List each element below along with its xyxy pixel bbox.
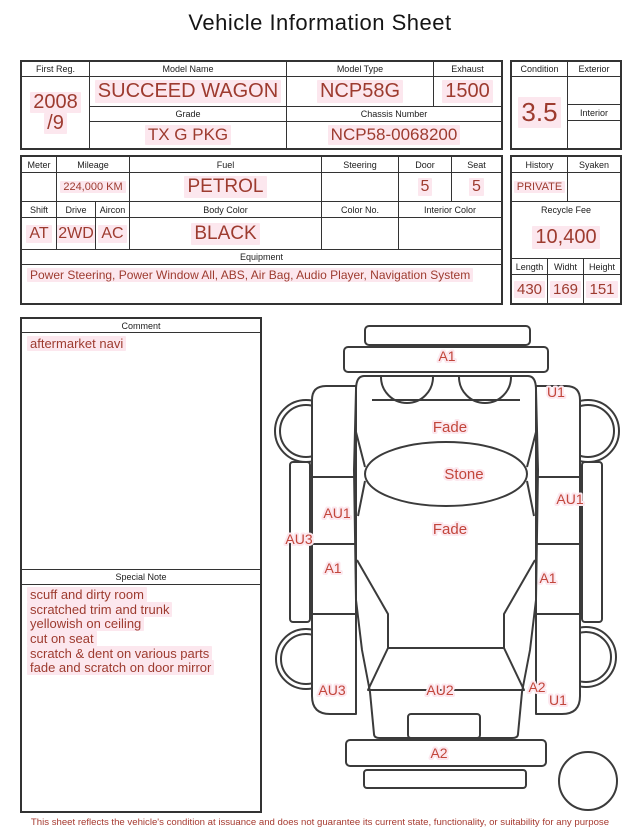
body-color-value: BLACK xyxy=(130,218,322,250)
damage-label: U1 xyxy=(547,384,565,400)
equipment-value: Power Steering, Power Window All, ABS, A… xyxy=(22,265,501,303)
color-no-value xyxy=(322,218,399,250)
mileage-value: 224,000 KM xyxy=(57,173,130,202)
special-note-label: Special Note xyxy=(22,569,260,585)
aircon-value: AC xyxy=(96,218,130,250)
damage-label: A1 xyxy=(438,348,455,364)
special-note-line: yellowish on ceiling xyxy=(27,617,144,631)
steering-label: Steering xyxy=(322,157,399,173)
seat-value: 5 xyxy=(452,173,501,202)
right-sill-panel xyxy=(582,462,602,622)
exterior-value xyxy=(568,77,620,105)
damage-label: AU3 xyxy=(318,682,345,698)
comment-special-note-box: Comment aftermarket navi Special Note sc… xyxy=(20,317,262,813)
comment-label: Comment xyxy=(22,319,260,333)
left-rear-fender-panel xyxy=(312,614,356,714)
syaken-value xyxy=(568,173,620,202)
license-plate-recess xyxy=(408,714,480,738)
recycle-fee-value: 10,400 xyxy=(512,217,620,259)
mileage-label: Mileage xyxy=(57,157,130,173)
history-label: History xyxy=(512,157,568,173)
damage-label: A2 xyxy=(430,745,447,761)
width-label: Widht xyxy=(548,259,584,275)
special-note-line: cut on seat xyxy=(27,632,97,646)
door-value: 5 xyxy=(399,173,452,202)
condition-value: 3.5 xyxy=(512,77,568,148)
meter-value xyxy=(22,173,57,202)
body-color-label: Body Color xyxy=(130,202,322,218)
height-value: 151 xyxy=(584,275,620,303)
chassis-number-label: Chassis Number xyxy=(287,107,501,122)
condition-label: Condition xyxy=(512,62,568,77)
damage-label: A2 xyxy=(528,679,545,695)
interior-label: Interior xyxy=(568,105,620,121)
interior-value xyxy=(568,121,620,148)
right-front-door-panel xyxy=(536,477,580,544)
history-value: PRIVATE xyxy=(512,173,568,202)
damage-label: AU1 xyxy=(556,491,583,507)
damage-label: AU1 xyxy=(323,505,350,521)
first-reg-label: First Reg. xyxy=(22,62,90,77)
damage-label: Fade xyxy=(433,521,467,538)
steering-value xyxy=(322,173,399,202)
comment-text: aftermarket navi xyxy=(22,333,260,569)
shift-label: Shift xyxy=(22,202,57,218)
cargo-side-lines xyxy=(357,560,535,648)
fuel-value: PETROL xyxy=(130,173,322,202)
left-front-fender-panel xyxy=(312,386,356,477)
damage-label: A1 xyxy=(539,570,556,586)
front-bumper-upper-bar xyxy=(365,326,530,345)
special-note-list: scuff and dirty room scratched trim and … xyxy=(22,585,260,811)
car-damage-diagram: A1 U1 Fade Stone AU1 AU1 AU3 Fade A1 A1 … xyxy=(268,318,632,812)
model-name-value: SUCCEED WAGON xyxy=(90,77,287,107)
page-title: Vehicle Information Sheet xyxy=(0,10,640,36)
seat-label: Seat xyxy=(452,157,501,173)
length-label: Length xyxy=(512,259,548,275)
width-value: 169 xyxy=(548,275,584,303)
fuel-label: Fuel xyxy=(130,157,322,173)
first-reg-year: 2008 xyxy=(30,92,81,113)
damage-label: AU2 xyxy=(426,682,453,698)
grade-value: TX G PKG xyxy=(90,122,287,148)
left-rear-door-panel xyxy=(312,544,356,614)
special-note-line: scratched trim and trunk xyxy=(27,603,172,617)
recycle-fee-label: Recycle Fee xyxy=(512,202,620,217)
exhaust-value: 1500 xyxy=(434,77,501,107)
spare-wheel xyxy=(559,752,617,810)
rear-bumper-lower-bar xyxy=(364,770,526,788)
special-note-line: fade and scratch on door mirror xyxy=(27,661,214,675)
interior-color-value xyxy=(399,218,501,250)
height-label: Height xyxy=(584,259,620,275)
meter-label: Meter xyxy=(22,157,57,173)
special-note-line: scratch & dent on various parts xyxy=(27,647,212,661)
drive-label: Drive xyxy=(57,202,96,218)
model-type-value: NCP58G xyxy=(287,77,434,107)
first-reg-value: 2008 /9 xyxy=(22,77,90,148)
damage-label: U1 xyxy=(549,692,567,708)
exhaust-label: Exhaust xyxy=(434,62,501,77)
color-no-label: Color No. xyxy=(322,202,399,218)
damage-label: Stone xyxy=(444,466,483,483)
condition-panel: Condition 3.5 Exterior Interior xyxy=(510,60,622,150)
exterior-label: Exterior xyxy=(568,62,620,77)
interior-color-label: Interior Color xyxy=(399,202,501,218)
equipment-label: Equipment xyxy=(22,250,501,265)
first-reg-month: /9 xyxy=(44,113,67,134)
syaken-label: Syaken xyxy=(568,157,620,173)
damage-label: AU3 xyxy=(285,531,312,547)
history-panel: History Syaken PRIVATE Recycle Fee 10,40… xyxy=(510,155,622,305)
damage-label: A1 xyxy=(324,560,341,576)
model-name-label: Model Name xyxy=(90,62,287,77)
vehicle-information-sheet: Vehicle Information Sheet First Reg. 200… xyxy=(0,0,640,835)
chassis-number-value: NCP58-0068200 xyxy=(287,122,501,148)
disclaimer-text: This sheet reflects the vehicle's condit… xyxy=(0,817,640,828)
model-type-label: Model Type xyxy=(287,62,434,77)
grade-label: Grade xyxy=(90,107,287,122)
door-label: Door xyxy=(399,157,452,173)
shift-value: AT xyxy=(22,218,57,250)
aircon-label: Aircon xyxy=(96,202,130,218)
drive-value: 2WD xyxy=(57,218,96,250)
length-value: 430 xyxy=(512,275,548,303)
vehicle-identity-table: First Reg. 2008 /9 Model Name SUCCEED WA… xyxy=(20,60,503,150)
special-note-line: scuff and dirty room xyxy=(27,588,147,602)
damage-label: Fade xyxy=(433,419,467,436)
spec-table: Meter Mileage Fuel Steering Door Seat 22… xyxy=(20,155,503,305)
